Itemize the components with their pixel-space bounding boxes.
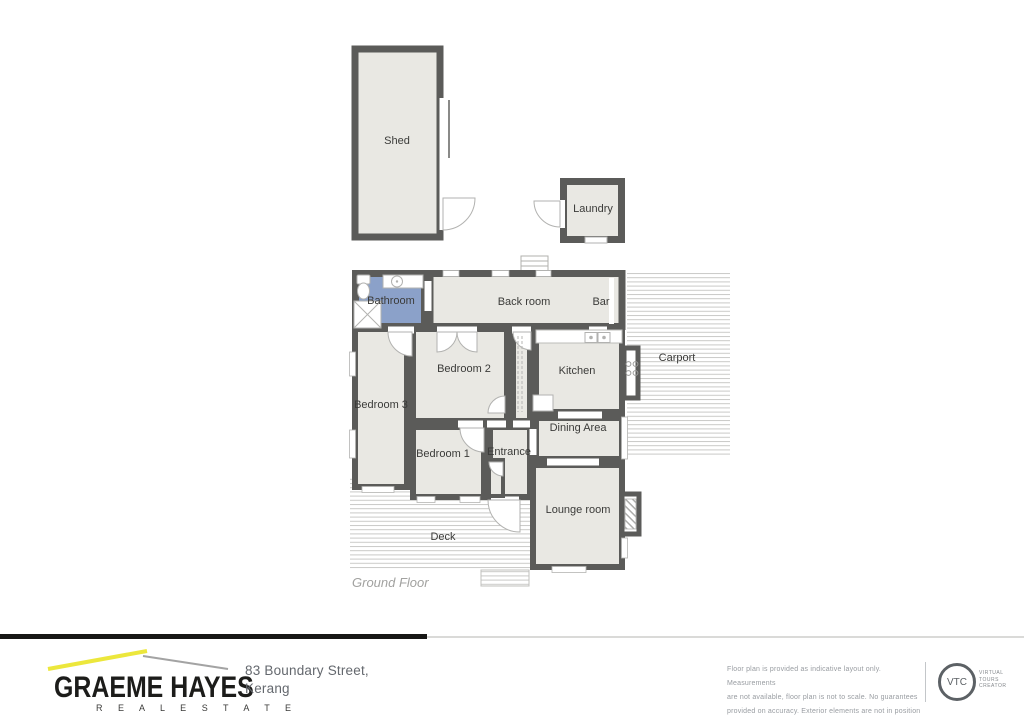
door-opening [487, 421, 506, 428]
deck-steps [481, 570, 529, 586]
room-label-deck: Deck [430, 531, 456, 543]
floor-plan-drawing: Shed Laundry Bathroom Back room Bar Carp… [0, 0, 1024, 632]
window [622, 538, 628, 558]
floor-title: Ground Floor [352, 575, 429, 590]
window [552, 567, 586, 573]
door-opening [425, 281, 432, 311]
footer-accent-bar [0, 634, 427, 639]
room-label-shed: Shed [384, 135, 410, 147]
carport-area [627, 272, 730, 457]
vtc-badge-icon: VTC [938, 663, 976, 701]
sink-drain-icon [396, 280, 398, 282]
laundry-window [585, 237, 607, 243]
door-opening [513, 421, 530, 428]
window [350, 430, 356, 458]
fireplace-hatch [625, 499, 636, 529]
disclaimer-line2: are not available, floor plan is not to … [727, 691, 922, 705]
laundry-door-arc [534, 201, 560, 227]
disclaimer-text: Floor plan is provided as indicative lay… [727, 663, 922, 719]
window [417, 497, 435, 503]
room-label-back-room: Back room [498, 296, 551, 308]
window [443, 271, 459, 277]
window [536, 271, 551, 277]
brand-name: GRAEME HAYES [54, 671, 254, 705]
room-label-bedroom2: Bedroom 2 [437, 363, 491, 375]
shed-door-arc [443, 198, 475, 230]
floor-plan-page: { "plan": { "floor_label": "Ground Floor… [0, 0, 1024, 725]
room-label-carport: Carport [659, 352, 696, 364]
disclaimer-line3: provided on accuracy. Exterior elements … [727, 705, 922, 719]
bar-door-leaf [609, 278, 614, 324]
disclaimer-line1: Floor plan is provided as indicative lay… [727, 663, 922, 691]
room-label-bedroom3: Bedroom 3 [354, 399, 408, 411]
window [350, 352, 356, 376]
back-steps [521, 256, 548, 272]
room-label-entrance: Entrance [487, 446, 531, 458]
property-address: 83 Boundary Street, Kerang [245, 662, 369, 698]
room-label-lounge: Lounge room [546, 504, 611, 516]
vtc-badge-text: VTC [947, 677, 967, 688]
sliding-door-dining [622, 417, 628, 459]
wide-opening [558, 412, 602, 419]
sink-drain-icon [602, 336, 606, 340]
door-opening [458, 421, 483, 428]
vtc-label-line3: CREATOR [979, 683, 1006, 690]
room-label-kitchen: Kitchen [559, 365, 596, 377]
brand-tagline: R E A L E S T A T E [96, 703, 298, 713]
sink-drain-icon [589, 336, 593, 340]
room-label-dining: Dining Area [550, 422, 608, 434]
room-label-bedroom1: Bedroom 1 [416, 448, 470, 460]
vtc-label-line1: VIRTUAL [979, 670, 1006, 677]
room-label-bar: Bar [592, 296, 609, 308]
room-lounge [533, 465, 622, 567]
room-label-laundry: Laundry [573, 203, 613, 215]
window [492, 271, 509, 277]
logo-gray-line-icon [143, 656, 228, 669]
kitchen-appliance [533, 395, 553, 411]
logo-yellow-line-icon [48, 651, 147, 669]
vtc-divider [925, 662, 926, 702]
wide-opening [547, 459, 599, 466]
address-line1: 83 Boundary Street, [245, 662, 369, 680]
room-label-bathroom: Bathroom [367, 295, 415, 307]
window [362, 487, 394, 493]
vtc-label: VIRTUAL TOURS CREATOR [979, 670, 1006, 690]
window [460, 497, 480, 503]
address-line2: Kerang [245, 680, 369, 698]
shed-sliding-door [448, 100, 450, 158]
